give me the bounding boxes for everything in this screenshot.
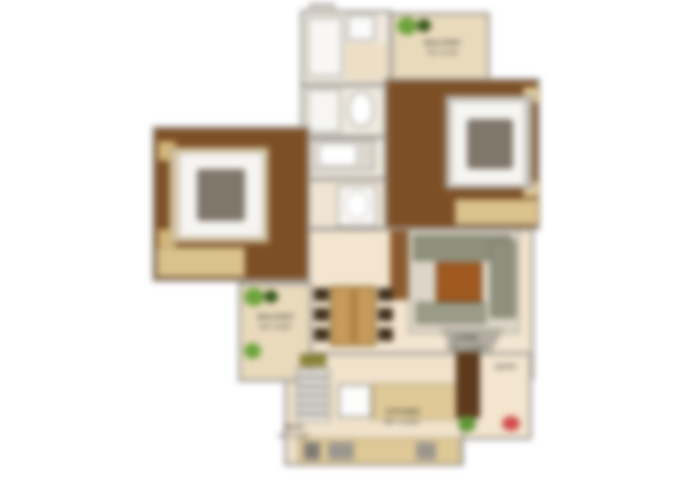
room-balcony-top: BALCONY 7'6" X 4'0" — [390, 12, 490, 82]
shower-closet — [307, 17, 343, 77]
blanket — [467, 119, 513, 169]
appliance-icon — [416, 442, 436, 460]
plant-icon — [397, 17, 417, 35]
room-bedroom-left — [152, 126, 310, 282]
dining-table-icon — [330, 286, 376, 346]
kitchen-sink-icon — [338, 384, 372, 418]
plant-icon — [244, 343, 261, 359]
table-runner — [351, 290, 357, 342]
plant-icon — [244, 288, 264, 306]
shelf-rack-icon — [296, 368, 330, 422]
dining-set — [310, 282, 396, 352]
floor-plan: BALCONY 7'6" X 4'0" BALCONY 5'0" X 8'6" — [0, 0, 700, 488]
room-label-balcony-left: BALCONY 5'0" X 8'6" — [245, 313, 307, 333]
plant-icon — [417, 19, 431, 32]
washbasin-icon — [345, 191, 369, 219]
washbasin-icon — [319, 144, 357, 166]
chair-icon — [378, 328, 393, 341]
washing-machine — [347, 15, 375, 41]
sofa-set — [408, 230, 520, 334]
floor-plan-image: BALCONY 7'6" X 4'0" BALCONY 5'0" X 8'6" — [0, 0, 700, 488]
room-label-wash: WASH 3'0" X 4'0" — [272, 424, 316, 442]
bath-passage — [345, 43, 389, 81]
bed-icon — [445, 95, 533, 189]
chair-icon — [314, 308, 329, 321]
shower-tray — [307, 89, 341, 133]
coffee-table-icon — [436, 262, 482, 302]
tall-cabinet — [456, 352, 480, 418]
room-name: ENTRY — [495, 365, 517, 371]
room-bath-block — [300, 10, 392, 230]
room-bedroom-right — [384, 78, 540, 230]
room-dims: 7'6" X 4'0" — [411, 50, 475, 59]
room-dims: 3'0" X 4'0" — [272, 433, 316, 442]
chair-icon — [314, 288, 329, 301]
chair-icon — [378, 308, 393, 321]
room-dims: 8'0" X 10'0" — [368, 419, 438, 428]
room-dims: 5'0" X 8'6" — [245, 324, 307, 333]
room-name: BALCONY — [425, 40, 462, 47]
sofa-icon — [490, 240, 516, 318]
room-name: KITCHEN — [386, 409, 419, 416]
stove-icon — [328, 442, 354, 460]
appliance-icon — [304, 442, 320, 460]
wardrobe-icon — [455, 199, 539, 225]
chair-icon — [378, 288, 393, 301]
room-label-balcony-top: BALCONY 7'6" X 4'0" — [411, 39, 475, 59]
plant-icon — [264, 290, 278, 303]
bed-icon — [169, 147, 269, 243]
wardrobe-icon — [157, 247, 245, 277]
sofa-icon — [416, 302, 486, 324]
duct — [309, 3, 335, 13]
plant-icon — [458, 416, 476, 432]
wall-divider — [303, 83, 389, 87]
room-label-living: LIVING 11'0" X 14'6" — [426, 334, 506, 354]
room-name: LIVING — [453, 335, 478, 342]
toilet-icon — [348, 91, 374, 127]
chair-icon — [314, 328, 329, 341]
room-name: BALCONY — [258, 314, 295, 321]
storage-shelf — [300, 354, 326, 366]
blanket — [197, 169, 245, 221]
room-name: WASH — [284, 425, 303, 431]
room-label-kitchen: KITCHEN 8'0" X 10'0" — [368, 408, 438, 428]
room-label-entry: ENTRY — [488, 364, 524, 373]
entry-marker-icon — [502, 416, 520, 431]
room-balcony-left: BALCONY 5'0" X 8'6" — [238, 282, 312, 382]
